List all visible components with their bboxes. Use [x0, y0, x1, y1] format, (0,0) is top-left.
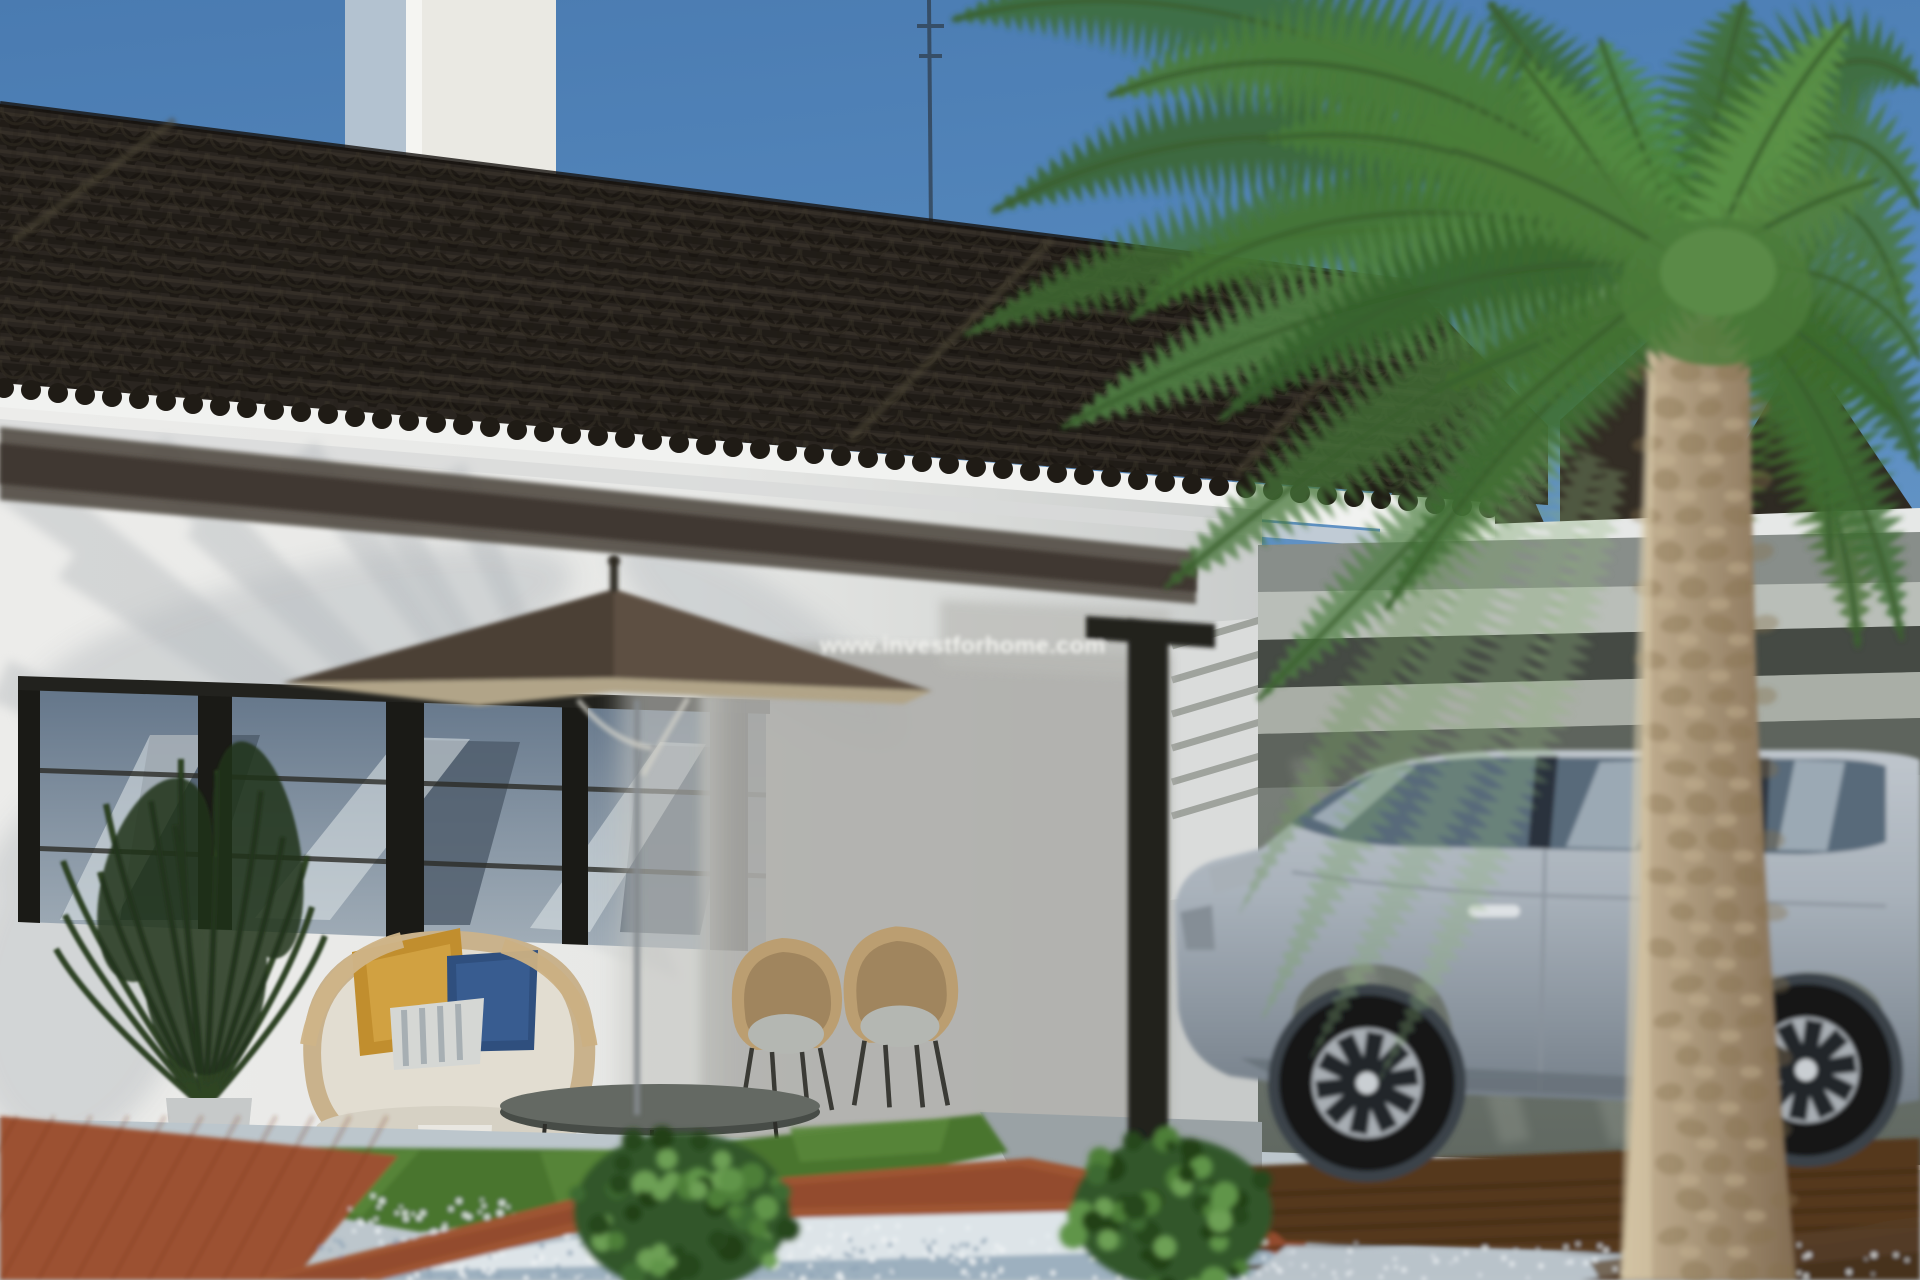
svg-text:www.investforhome.com: www.investforhome.com: [819, 632, 1106, 658]
